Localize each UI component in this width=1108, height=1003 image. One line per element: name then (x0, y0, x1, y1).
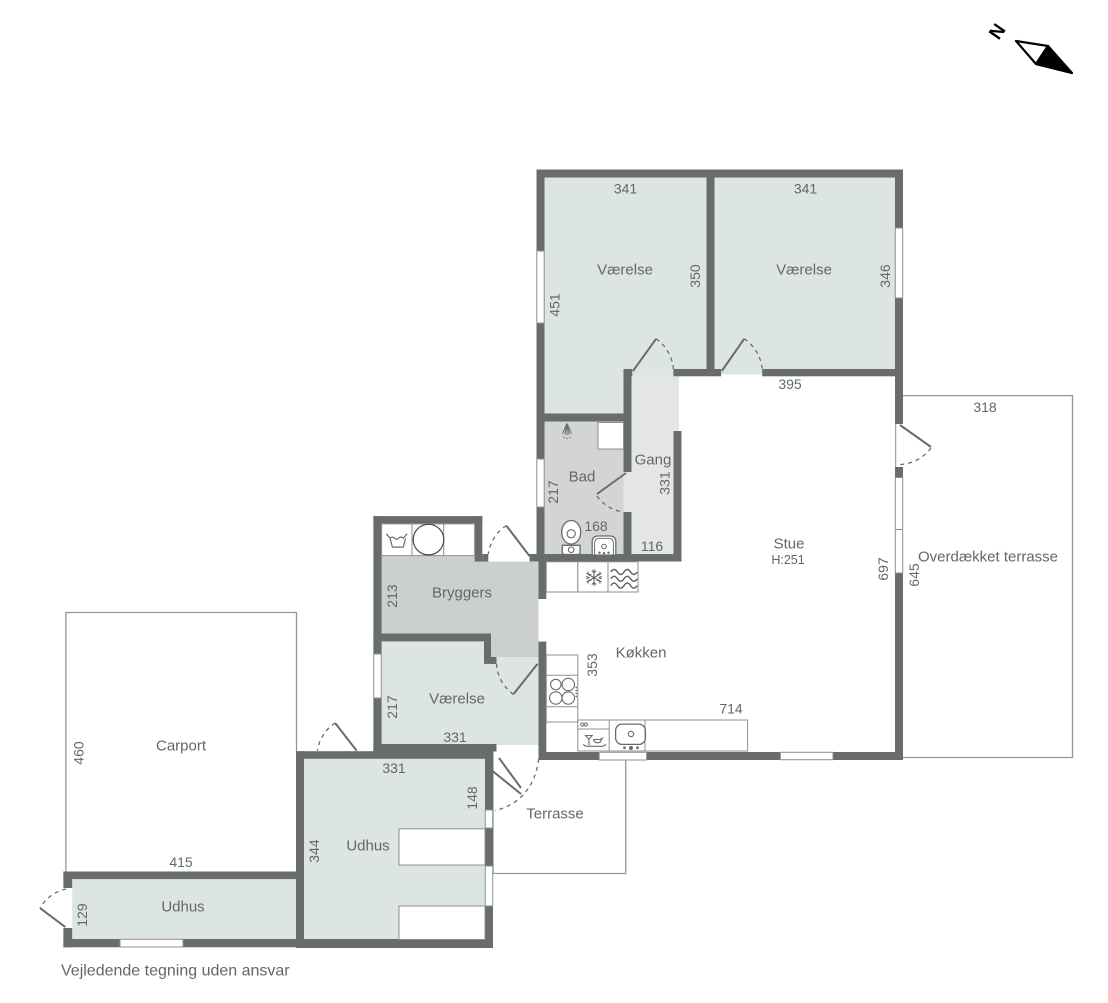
svg-text:Bryggers: Bryggers (432, 585, 492, 602)
svg-text:645: 645 (906, 563, 922, 587)
svg-text:353: 353 (584, 653, 600, 677)
svg-text:Overdækket terrasse: Overdækket terrasse (918, 549, 1058, 566)
svg-text:341: 341 (614, 181, 638, 197)
svg-text:331: 331 (657, 471, 673, 495)
svg-text:Udhus: Udhus (161, 899, 204, 916)
svg-text:346: 346 (877, 264, 893, 288)
svg-text:217: 217 (384, 695, 400, 719)
svg-text:168: 168 (584, 518, 608, 534)
svg-text:Køkken: Køkken (616, 645, 667, 662)
svg-text:331: 331 (382, 760, 406, 776)
svg-text:415: 415 (169, 854, 193, 870)
svg-text:331: 331 (443, 729, 467, 745)
svg-text:H:251: H:251 (771, 553, 804, 567)
svg-text:129: 129 (74, 903, 90, 927)
svg-text:460: 460 (71, 741, 87, 765)
svg-text:318: 318 (973, 399, 997, 415)
svg-text:Bad: Bad (569, 469, 596, 486)
svg-text:Terrasse: Terrasse (526, 806, 584, 823)
svg-text:116: 116 (641, 538, 664, 554)
svg-text:Carport: Carport (156, 738, 207, 755)
svg-text:217: 217 (545, 480, 561, 504)
svg-text:341: 341 (794, 181, 818, 197)
svg-text:Udhus: Udhus (346, 838, 389, 855)
svg-text:213: 213 (384, 584, 400, 608)
svg-text:Gang: Gang (635, 452, 672, 469)
svg-text:714: 714 (719, 701, 743, 717)
svg-text:148: 148 (464, 786, 480, 810)
svg-text:Stue: Stue (774, 536, 805, 553)
svg-text:Vejledende tegning uden ansvar: Vejledende tegning uden ansvar (61, 963, 290, 980)
svg-text:395: 395 (778, 376, 802, 392)
svg-text:697: 697 (875, 557, 891, 581)
svg-text:Værelse: Værelse (776, 262, 832, 279)
svg-text:Værelse: Værelse (597, 262, 653, 279)
svg-text:350: 350 (687, 264, 703, 288)
svg-text:451: 451 (547, 293, 563, 317)
svg-text:344: 344 (306, 839, 322, 863)
svg-text:Værelse: Værelse (429, 691, 485, 708)
